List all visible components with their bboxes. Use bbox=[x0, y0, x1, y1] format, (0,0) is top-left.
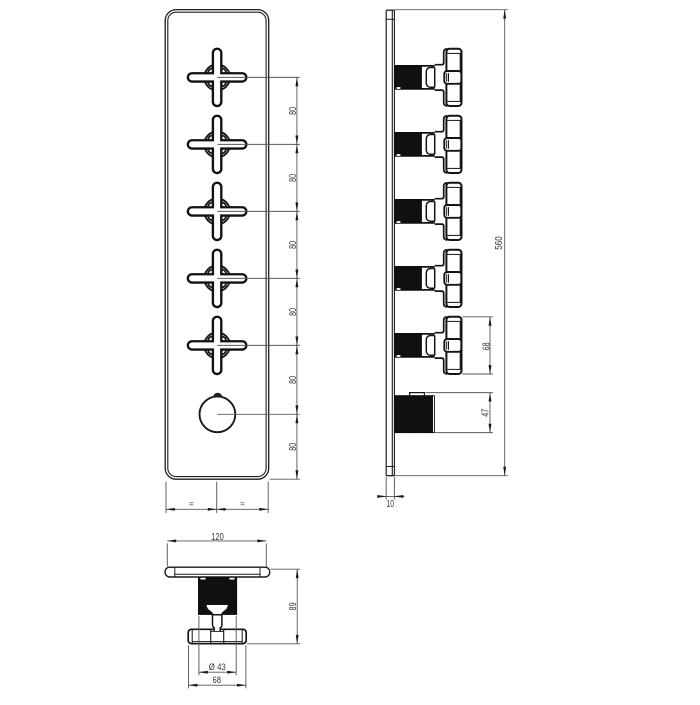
svg-text:=: = bbox=[189, 500, 194, 509]
svg-text:47: 47 bbox=[481, 409, 492, 417]
svg-text:80: 80 bbox=[288, 107, 299, 115]
svg-text:80: 80 bbox=[288, 174, 299, 182]
svg-text:10: 10 bbox=[386, 499, 394, 510]
svg-text:80: 80 bbox=[288, 375, 299, 383]
svg-text:68: 68 bbox=[213, 674, 222, 685]
svg-text:Ø 43: Ø 43 bbox=[209, 661, 226, 672]
svg-text:=: = bbox=[240, 500, 245, 509]
svg-text:89: 89 bbox=[288, 602, 299, 610]
svg-text:68: 68 bbox=[482, 342, 493, 350]
svg-text:120: 120 bbox=[211, 532, 224, 543]
svg-text:80: 80 bbox=[288, 442, 299, 450]
svg-text:560: 560 bbox=[494, 236, 505, 250]
svg-text:80: 80 bbox=[288, 308, 299, 316]
svg-text:80: 80 bbox=[288, 241, 299, 249]
